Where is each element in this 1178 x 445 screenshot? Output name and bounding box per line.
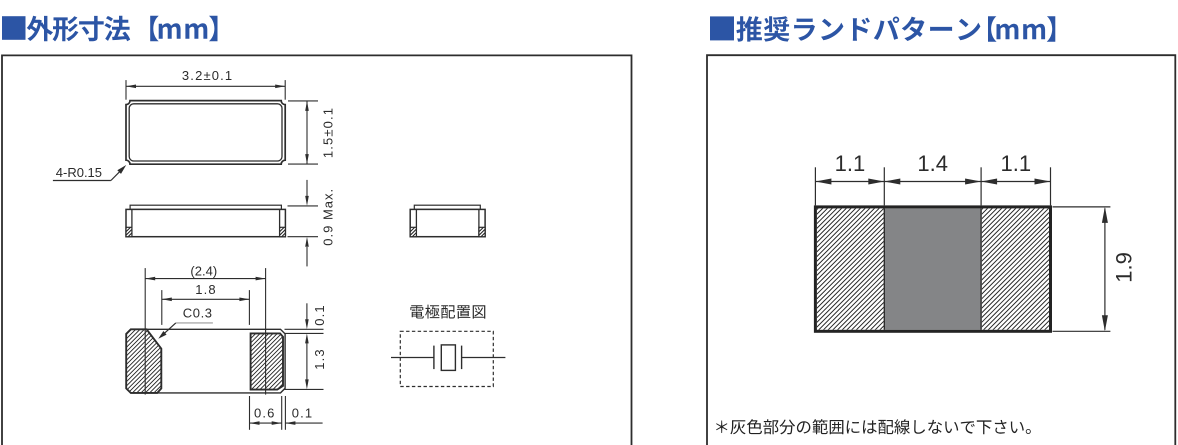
svg-text:1.5±0.1: 1.5±0.1 <box>321 107 336 158</box>
svg-text:1.3: 1.3 <box>312 348 327 370</box>
svg-text:C0.3: C0.3 <box>183 305 213 320</box>
svg-text:0.9 Max.: 0.9 Max. <box>321 188 336 246</box>
svg-text:1.8: 1.8 <box>195 282 217 297</box>
svg-text:0.1: 0.1 <box>312 304 327 326</box>
svg-text:(2.4): (2.4) <box>190 263 217 278</box>
svg-text:0.1: 0.1 <box>292 406 314 421</box>
svg-text:1.1: 1.1 <box>1001 151 1032 176</box>
svg-text:4-R0.15: 4-R0.15 <box>56 165 102 180</box>
svg-text:3.2±0.1: 3.2±0.1 <box>182 68 233 83</box>
svg-text:1.9: 1.9 <box>1112 252 1137 283</box>
svg-text:1.1: 1.1 <box>835 151 866 176</box>
svg-text:0.6: 0.6 <box>254 406 276 421</box>
svg-text:1.4: 1.4 <box>917 151 948 176</box>
